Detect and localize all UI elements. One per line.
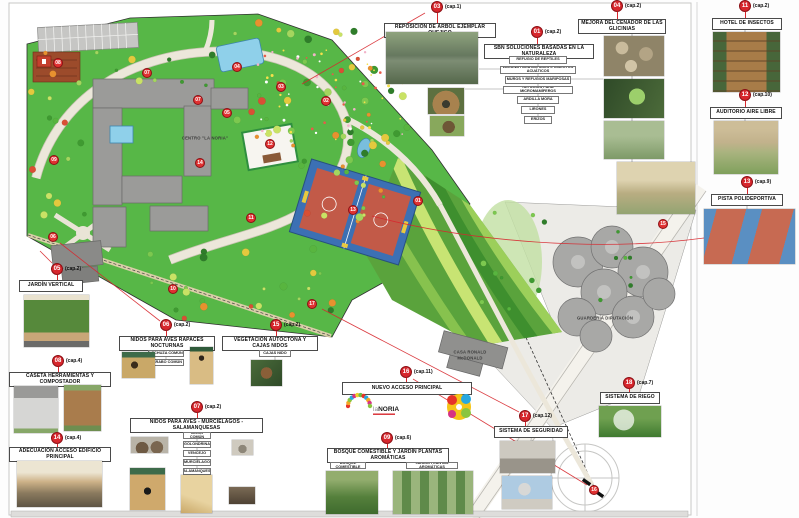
map-label-guarderia: GUARDERÍA DIPUTACIÓN: [577, 316, 633, 321]
sub-label: ERIZOS: [524, 116, 552, 124]
sub-label: JARDÍN PLANTAS AROMÁTICAS: [406, 462, 458, 469]
panel-cap: (cap.9): [755, 179, 771, 185]
panel-cap: (cap.6): [395, 435, 411, 441]
map-marker-12: 12: [265, 139, 275, 149]
panel-title-vegetacion-autoctona: VEGETACIÓN AUTÓCTONA Y CAJAS NIDOS: [222, 336, 318, 351]
photo-bat-box: [130, 468, 165, 510]
masterplan-sheet: 080704070503021209140113110610171516CENT…: [0, 0, 799, 518]
panel-title-hotel-insectos: HOTEL DE INSECTOS: [712, 18, 782, 30]
photo-sprinkler: [599, 406, 661, 437]
lanoria-logo: laNORIA: [346, 390, 400, 422]
sub-label: LAGUNA PARA ANFIBIOS E INSECTOS ACUÁTICO…: [500, 66, 576, 74]
marker-connector: [57, 275, 58, 280]
marker-connector: [629, 389, 630, 392]
svg-text:laNORIA: laNORIA: [373, 406, 399, 413]
map-marker-15: 15: [658, 219, 668, 229]
map-marker-13: 13: [348, 205, 358, 215]
photo-camera: [502, 476, 552, 509]
panel-cap: (cap.1): [445, 4, 461, 10]
map-marker-17: 17: [307, 299, 317, 309]
panel-marker-06: 06: [160, 319, 172, 331]
panel-marker-18: 18: [623, 377, 635, 389]
panel-title-jardin-vertical: JARDÍN VERTICAL: [19, 280, 83, 292]
sub-label: BOSQUE COMESTIBLE: [330, 462, 366, 469]
marker-connector: [617, 12, 618, 19]
panel-cap: (cap.2): [174, 322, 190, 328]
panel-cap: (cap.2): [753, 3, 769, 9]
marker-connector: [406, 378, 407, 382]
sub-label: VENCEJO: [183, 450, 211, 457]
photo-dome: [428, 88, 464, 114]
map-marker-07: 07: [142, 68, 152, 78]
panel-cap: (cap.4): [65, 435, 81, 441]
panel-title-sistema-seguridad: SISTEMA DE SEGURIDAD: [494, 426, 568, 438]
map-marker-01: 01: [413, 196, 423, 206]
sub-label: MURCIÉLAGO: [183, 459, 211, 466]
annotation-overlay: 080704070503021209140113110610171516CENT…: [0, 0, 799, 518]
photo-green-wall: [24, 295, 89, 347]
panel-title-cenador-glicinias: MEJORA DEL CENADOR DE LAS GLICINIAS: [578, 19, 666, 34]
lanoria-arc-icon: laNORIA: [346, 390, 400, 422]
panel-marker-07: 07: [191, 401, 203, 413]
panel-cap: (cap.2): [284, 322, 300, 328]
panel-marker-11: 11: [739, 0, 751, 12]
map-marker-09: 09: [49, 155, 59, 165]
panel-marker-09: 09: [381, 432, 393, 444]
marker-connector: [166, 331, 167, 336]
photo-amphitheater: [714, 121, 778, 174]
marker-connector: [57, 444, 58, 447]
panel-marker-04: 04: [611, 0, 623, 12]
map-label-centro: CENTRO "LA NORIA": [182, 136, 228, 141]
panel-marker-16: 16: [400, 366, 412, 378]
photo-pergola: [604, 121, 664, 159]
marker-connector: [437, 13, 438, 23]
panel-marker-05: 05: [51, 263, 63, 275]
panel-marker-03: 03: [431, 1, 443, 13]
map-marker-04: 04: [232, 62, 242, 72]
map-marker-05: 05: [222, 108, 232, 118]
sub-label: CAJAS NIDO: [259, 350, 291, 357]
panel-cap: (cap.7): [637, 380, 653, 386]
sub-label: AVIÓN COMÚN: [183, 432, 211, 439]
map-marker-14: 14: [195, 158, 205, 168]
map-label-casa-ronald-2: McDONALD: [457, 356, 482, 361]
map-marker-06: 06: [48, 232, 58, 242]
map-marker-16: 16: [589, 485, 599, 495]
map-marker-07: 07: [193, 95, 203, 105]
panel-title-pista-polideportiva: PISTA POLIDEPORTIVA: [711, 194, 783, 206]
marker-connector: [745, 101, 746, 107]
map-marker-11: 11: [246, 213, 256, 223]
photo-wood-box: [181, 475, 212, 513]
photo-bench: [617, 162, 695, 214]
photo-hedgehog: [430, 116, 464, 136]
panel-cap: (cap.2): [65, 266, 81, 272]
photo-rocks: [604, 36, 664, 76]
sub-label: REFUGIOS PARA MICROMAMÍFEROS: [503, 86, 573, 94]
panel-marker-08: 08: [52, 355, 64, 367]
panel-marker-01: 01: [531, 26, 543, 38]
map-marker-08: 08: [53, 58, 63, 68]
sub-label: MUROS Y REFUGIOS MARIPOSAS: [505, 76, 571, 84]
marker-connector: [537, 38, 538, 44]
photo-pond: [386, 32, 478, 84]
photo-barrier: [500, 441, 555, 473]
photo-nest-box-tall: [190, 347, 213, 384]
photo-aromatics: [393, 471, 473, 514]
colorful-blob-icon: [444, 392, 474, 422]
photo-courts: [704, 209, 795, 264]
panel-marker-13: 13: [741, 176, 753, 188]
map-label-casa-ronald-1: CASA RONALD: [454, 350, 487, 355]
panel-marker-12: 12: [739, 89, 751, 101]
panel-cap: (cap.2): [205, 404, 221, 410]
panel-title-auditorio: AUDITORIO AIRE LIBRE: [710, 107, 782, 119]
panel-title-bosque-comestible: BOSQUE COMESTIBLE Y JARDÍN PLANTAS AROMÁ…: [327, 448, 449, 463]
panel-cap: (cap.10): [753, 92, 772, 98]
map-marker-02: 02: [321, 96, 331, 106]
photo-swift-cup: [232, 440, 253, 455]
photo-insect-hotel: [713, 32, 780, 92]
photo-birdhouse: [604, 79, 664, 118]
panel-title-nidos-aves: NIDOS PARA AVES - MURCIÉLAGOS - SALAMANQ…: [130, 418, 263, 433]
sub-label: LIRONES: [521, 106, 555, 114]
photo-entrance: [17, 461, 102, 507]
marker-connector: [525, 422, 526, 426]
panel-marker-14: 14: [51, 432, 63, 444]
sub-label: ARDILLA MORA: [517, 96, 559, 104]
map-marker-10: 10: [168, 284, 178, 294]
panel-title-sistema-riego: SISTEMA DE RIEGO: [600, 392, 660, 404]
photo-shed: [14, 386, 58, 433]
panel-cap: (cap.2): [625, 3, 641, 9]
sub-label: GOLONDRINA: [183, 441, 211, 448]
panel-cap: (cap.12): [533, 413, 552, 419]
photo-owl-box: [122, 352, 155, 378]
marker-connector: [276, 331, 277, 336]
sub-label: REFUGIO DE REPTILES: [509, 56, 567, 64]
panel-marker-15: 15: [270, 319, 282, 331]
map-marker-03: 03: [276, 82, 286, 92]
panel-title-acceso-edificio: ADECUACIÓN ACCESO EDIFICIO PRINCIPAL: [9, 447, 111, 462]
marker-connector: [58, 367, 59, 372]
photo-composter: [64, 385, 101, 431]
photo-mud-nests: [131, 437, 168, 453]
marker-connector: [747, 188, 748, 194]
panel-cap: (cap.4): [66, 358, 82, 364]
photo-nestbox-tree: [251, 360, 282, 386]
marker-connector: [387, 444, 388, 448]
colorful-logo: [444, 392, 474, 422]
marker-connector: [197, 413, 198, 418]
sub-label: SALAMANQUESA: [183, 468, 211, 475]
photo-shrubs: [326, 471, 378, 514]
panel-cap: (cap.2): [545, 29, 561, 35]
marker-connector: [745, 12, 746, 18]
photo-dark-box: [229, 487, 255, 504]
panel-cap: (cap.11): [414, 369, 433, 375]
panel-marker-17: 17: [519, 410, 531, 422]
